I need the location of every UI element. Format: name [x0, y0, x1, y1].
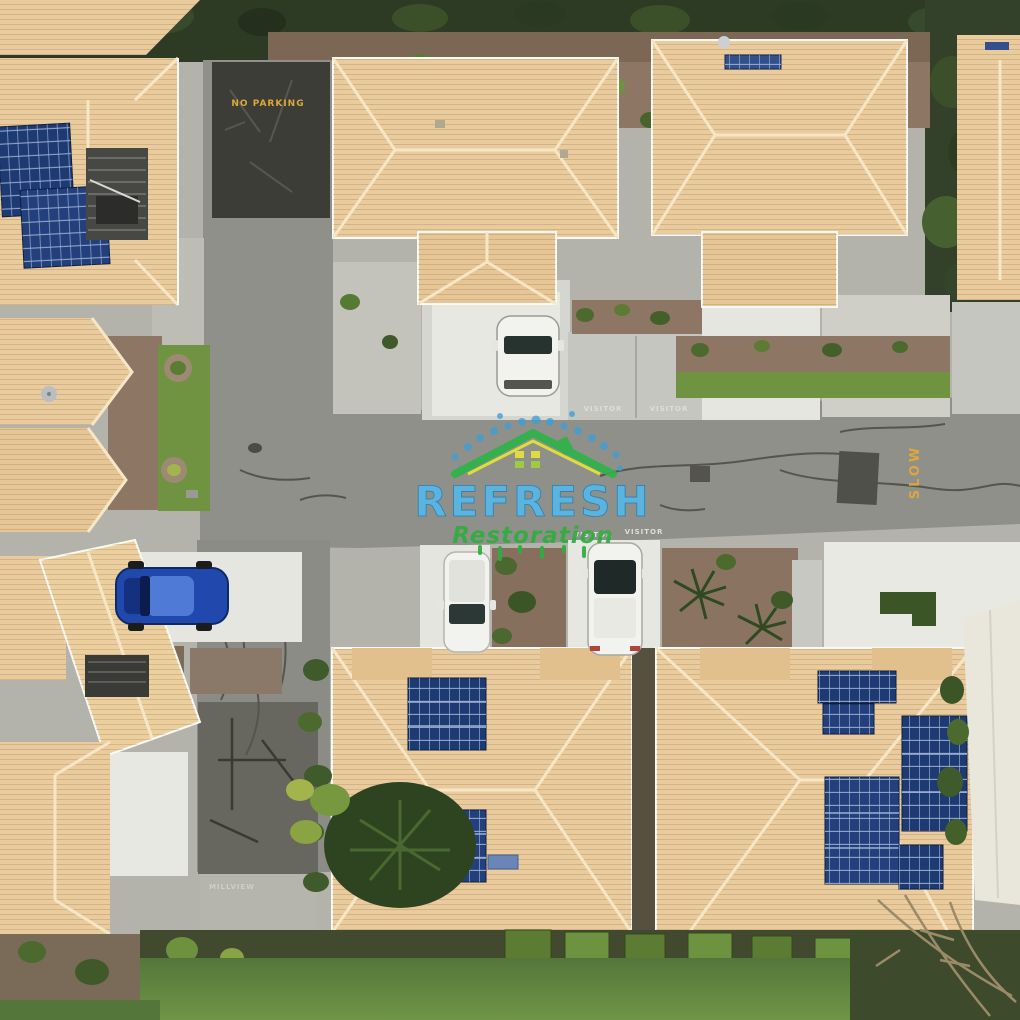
tar-patch: [837, 451, 880, 505]
solar-array-tr: [725, 55, 781, 69]
solar-array-br-4: [825, 777, 899, 884]
house-gap-shadow: [632, 648, 656, 948]
no-parking-marking: NO PARKING: [231, 99, 304, 109]
visitor-marking-1: VISITOR: [584, 405, 623, 413]
aerial-photo-stage: NO PARKING SLOW VISITOR VISITOR VISITOR …: [0, 0, 1020, 1020]
car-white-suv-top: [492, 316, 564, 396]
car-white-suv-center: [582, 543, 648, 655]
visitor-marking-4: VISITOR: [625, 528, 664, 536]
watermark-subtitle: Restoration: [452, 523, 614, 549]
car-blue-hatchback: [116, 561, 228, 631]
aerial-photo: NO PARKING SLOW VISITOR VISITOR VISITOR …: [0, 0, 1020, 1020]
slow-marking: SLOW: [908, 445, 923, 500]
solar-array-bc-1: [408, 678, 486, 750]
car-white-center: [438, 552, 496, 652]
solar-array-br-5: [899, 845, 943, 889]
pergola: [86, 148, 148, 240]
lawn-strip-right: [676, 372, 950, 398]
tar-patch-small: [690, 466, 710, 482]
solar-panel-small-bc: [488, 855, 518, 869]
solar-array-br-2: [823, 704, 874, 734]
watermark-title: REFRESH: [414, 477, 651, 526]
driveway-label-marking: MILLVIEW: [209, 883, 255, 891]
solar-array-br-1: [818, 671, 896, 703]
visitor-marking-2: VISITOR: [650, 405, 689, 413]
house-far-right: [957, 35, 1020, 300]
satellite-dish-right: [718, 36, 730, 48]
